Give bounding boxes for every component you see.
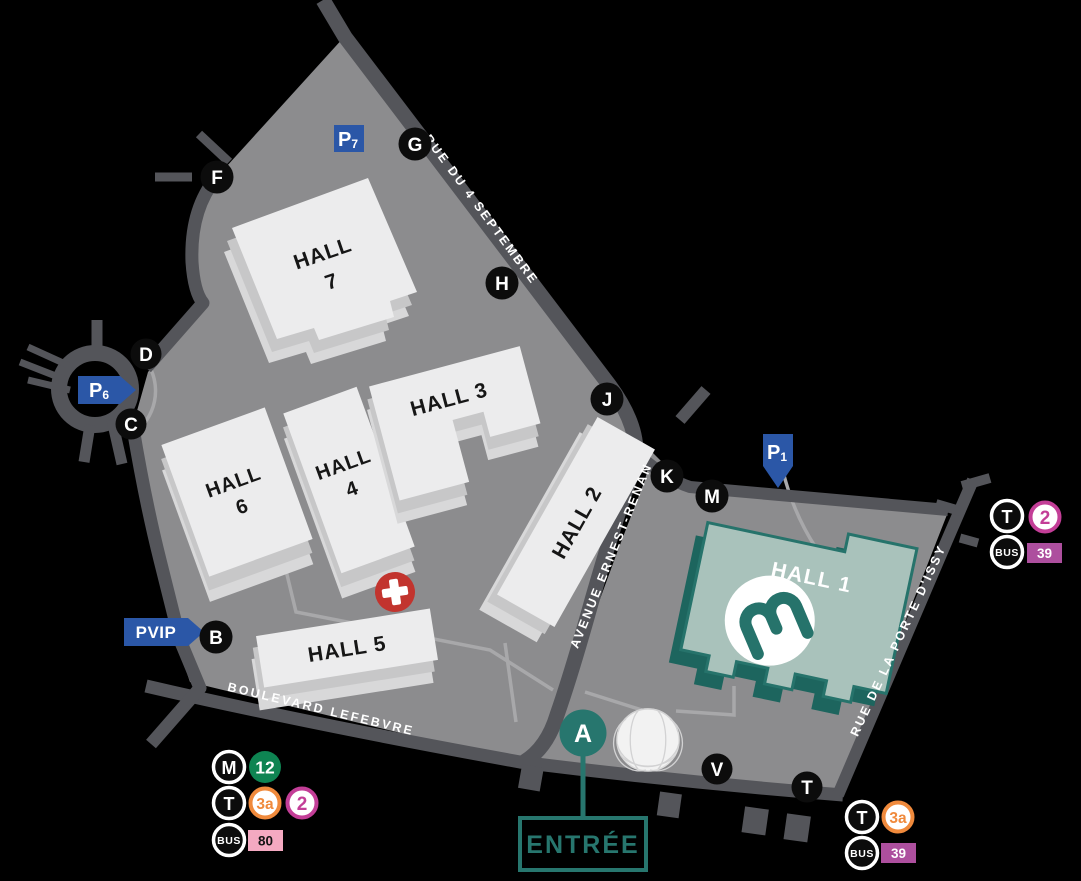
gate-j-letter: J [602, 390, 613, 411]
bus-icon-letter: BUS [850, 848, 874, 860]
tram-icon-letter: T [1002, 507, 1013, 527]
parking-pvip-label: PVIP [136, 623, 177, 642]
platform-stub [518, 764, 544, 791]
bus-line-39-label: 39 [891, 846, 906, 861]
entrance-gate-letter: A [574, 720, 592, 748]
gate-f: F [201, 161, 234, 194]
gate-f-letter: F [211, 168, 223, 189]
metro-icon-letter: M [222, 758, 237, 778]
bus-line-80-label: 80 [258, 834, 273, 849]
tram-icon-letter: T [857, 808, 868, 828]
gate-m: M [696, 480, 729, 513]
parking-pvip-badge: PVIP [124, 618, 204, 646]
tram-line-2-label: 2 [297, 794, 308, 815]
bus-icon-letter: BUS [217, 835, 241, 847]
tram-line-3a-label: 3a [889, 810, 907, 827]
roundabout-spoke-south [84, 425, 90, 462]
road-hatch-left [936, 504, 960, 511]
gate-v: V [702, 754, 733, 785]
gate-g: G [399, 128, 432, 161]
platform-stub [741, 806, 768, 835]
gate-d-letter: D [139, 345, 153, 366]
gate-t: T [792, 772, 823, 803]
parking-p7-badge: P7 [334, 125, 364, 152]
gate-m-letter: M [704, 487, 720, 508]
tram-icon-letter: T [224, 794, 235, 814]
gate-k: K [651, 460, 684, 493]
road-hatch-right [960, 538, 978, 543]
gate-c: C [116, 409, 147, 440]
venue-map: HALL 7 HALL 6 HALL 4 HALL 3 HALL 2 HALL … [0, 0, 1081, 881]
gate-h: H [486, 267, 519, 300]
platform-stub [657, 791, 682, 818]
gate-j: J [591, 383, 624, 416]
bus-line-39-label: 39 [1037, 546, 1052, 561]
gate-k-letter: K [660, 467, 674, 488]
gate-t-letter: T [801, 778, 813, 799]
bus-icon-letter: BUS [995, 547, 1019, 559]
tram-line-2-label: 2 [1040, 508, 1051, 529]
platform-stub [783, 813, 810, 842]
gate-b: B [200, 621, 233, 654]
gate-d: D [131, 339, 162, 370]
gate-h-letter: H [495, 274, 509, 295]
entrance-label: ENTRÉE [526, 830, 639, 859]
gate-b-letter: B [209, 628, 223, 649]
gate-c-letter: C [124, 415, 138, 436]
metro-line-12-label: 12 [255, 758, 275, 778]
gate-v-letter: V [711, 760, 724, 781]
gate-g-letter: G [408, 135, 423, 156]
tram-line-3a-label: 3a [256, 796, 274, 813]
